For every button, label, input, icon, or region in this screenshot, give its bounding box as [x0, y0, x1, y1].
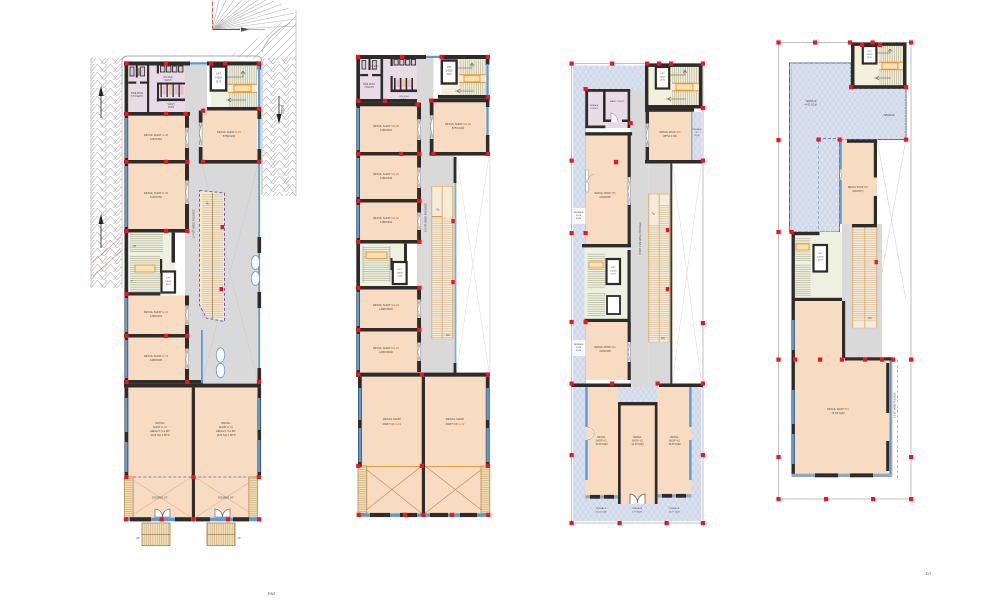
svg-text:RETAIL SHOP UG-03: RETAIL SHOP UG-03: [373, 216, 400, 220]
svg-text:1480X3525: 1480X3525: [379, 307, 393, 311]
svg-text:1450X: 1450X: [659, 76, 666, 78]
svg-text:1480X345: 1480X345: [380, 176, 393, 180]
svg-text:LIFT: LIFT: [166, 278, 171, 280]
svg-text:WASH: WASH: [168, 103, 175, 106]
svg-text:SQ.M: SQ.M: [694, 135, 699, 137]
svg-text:RETAIL SHOP UG-06: RETAIL SHOP UG-06: [445, 122, 472, 126]
svg-text:120X1505: 120X1505: [599, 196, 611, 199]
svg-text:74.83 SQM: 74.83 SQM: [831, 411, 844, 415]
svg-text:UP: UP: [133, 246, 137, 248]
svg-text:1123 SQ.1 MTS: 1123 SQ.1 MTS: [216, 433, 235, 437]
svg-text:34.02 SQM: 34.02 SQM: [595, 512, 606, 514]
svg-text:PART OF G-02: PART OF G-02: [446, 422, 465, 426]
svg-text:LIFT: LIFT: [867, 51, 872, 53]
svg-text:1150X310: 1150X310: [150, 137, 163, 141]
svg-text:LIFT: LIFT: [611, 267, 616, 269]
svg-text:2.4 MT. WIDE PASSAGE: 2.4 MT. WIDE PASSAGE: [192, 209, 196, 238]
svg-text:LIFT: LIFT: [818, 253, 823, 255]
svg-text:5 TOILETS: 5 TOILETS: [131, 95, 143, 98]
svg-text:1450X: 1450X: [165, 281, 172, 283]
svg-text:SQ.M: SQ.M: [576, 218, 582, 220]
svg-text:2170: 2170: [660, 80, 666, 82]
svg-text:RETAIL SHOP: RETAIL SHOP: [383, 417, 401, 421]
svg-text:TERRACE: TERRACE: [574, 343, 585, 346]
svg-text:5.79 SQM: 5.79 SQM: [632, 512, 642, 514]
svg-text:1480X310: 1480X310: [380, 128, 393, 132]
svg-text:88*54 X OB: 88*54 X OB: [663, 135, 677, 138]
svg-text:RETAIL SHOP UG-02: RETAIL SHOP UG-02: [373, 303, 400, 307]
svg-text:RETAIL SHOP 501: RETAIL SHOP 501: [827, 407, 849, 411]
svg-text:SHOP 3.4M WIDE PASSAGE: SHOP 3.4M WIDE PASSAGE: [639, 222, 642, 255]
svg-text:DOUBLE HT.: DOUBLE HT.: [218, 496, 234, 500]
svg-text:PASS: PASS: [168, 106, 174, 109]
svg-text:RETAIL: RETAIL: [221, 421, 231, 425]
svg-text:8750X100: 8750X100: [223, 134, 236, 138]
svg-text:RETAIL SHOP G-04: RETAIL SHOP G-04: [144, 310, 169, 314]
svg-text:(PANTRY): (PANTRY): [852, 190, 863, 193]
svg-text:41.50 SQM: 41.50 SQM: [631, 443, 643, 446]
svg-text:3.4 MT. WIDE PASSAGE: 3.4 MT. WIDE PASSAGE: [424, 203, 428, 232]
svg-text:150X1505: 150X1505: [599, 350, 611, 353]
svg-text:RETAIL SHOP UG-04: RETAIL SHOP UG-04: [373, 172, 400, 176]
svg-text:RETAIL SHOP 405: RETAIL SHOP 405: [594, 192, 616, 195]
svg-text:TOILET: TOILET: [590, 108, 598, 110]
svg-text:DOUBLE HT.: DOUBLE HT.: [152, 496, 168, 500]
svg-text:HEIGHT- 5.4 MT.: HEIGHT- 5.4 MT.: [150, 429, 171, 433]
svg-text:PART OF G-01: PART OF G-01: [383, 422, 402, 426]
svg-text:RETAIL SHOP UG-05: RETAIL SHOP UG-05: [373, 124, 400, 128]
svg-text:2170: 2170: [818, 260, 824, 262]
svg-text:1.8 M: 1.8 M: [576, 347, 581, 349]
svg-text:LIFT: LIFT: [216, 73, 221, 76]
svg-text:1123 SQ.1 MTS: 1123 SQ.1 MTS: [150, 433, 169, 437]
svg-text:RETAIL: RETAIL: [155, 421, 165, 425]
svg-text:RETAIL SHOP G-07: RETAIL SHOP G-07: [217, 130, 242, 134]
svg-text:SHOP G-02: SHOP G-02: [219, 425, 234, 429]
svg-text:30.97 SQM: 30.97 SQM: [668, 512, 679, 514]
svg-text:UP: UP: [136, 536, 140, 540]
svg-text:FEMALE: FEMALE: [590, 104, 599, 107]
svg-text:DN: DN: [661, 337, 665, 340]
svg-text:LIFT: LIFT: [397, 269, 402, 271]
svg-text:1480X302: 1480X302: [380, 220, 393, 224]
svg-text:DN: DN: [868, 317, 872, 320]
svg-text:WASH: WASH: [165, 79, 172, 82]
svg-text:RETAIL SHOP UG-01: RETAIL SHOP UG-01: [373, 346, 400, 350]
svg-text:1480X302: 1480X302: [150, 314, 163, 318]
svg-text:WC AND: WC AND: [163, 76, 173, 79]
svg-text:39.59 SQM: 39.59 SQM: [668, 443, 680, 446]
svg-text:WC AND: WC AND: [370, 65, 379, 68]
svg-text:2170: 2170: [166, 284, 172, 286]
svg-text:1450X: 1450X: [215, 77, 222, 80]
svg-text:FIRE PASS: FIRE PASS: [363, 83, 375, 86]
svg-text:LIFT: LIFT: [660, 73, 665, 75]
svg-text:875X4100: 875X4100: [452, 126, 465, 130]
svg-text:SQ.M: SQ.M: [576, 350, 582, 352]
svg-text:TERRACE: TERRACE: [669, 507, 680, 510]
svg-text:TERRACE: TERRACE: [632, 507, 643, 510]
svg-text:2170: 2170: [447, 74, 453, 76]
svg-text:44.03 SQ.M.: 44.03 SQ.M.: [805, 105, 818, 107]
svg-text:RETAIL SHOP 502: RETAIL SHOP 502: [848, 186, 869, 189]
svg-text:2170: 2170: [216, 81, 222, 84]
svg-text:WS WSH: WS WSH: [399, 96, 409, 98]
svg-text:RETAIL SHOP G-06: RETAIL SHOP G-06: [144, 133, 169, 137]
svg-text:TERRACE: TERRACE: [806, 100, 817, 103]
svg-text:1450X: 1450X: [610, 270, 617, 272]
svg-text:RETAIL SHOP G-03: RETAIL SHOP G-03: [144, 354, 169, 358]
svg-text:WASH: WASH: [371, 68, 378, 71]
svg-text:1120X750: 1120X750: [150, 195, 163, 199]
svg-text:5.0 M: 5.0 M: [576, 215, 581, 217]
svg-text:3.0 MT. WIDE PASSAGE: 3.0 MT. WIDE PASSAGE: [894, 392, 897, 418]
svg-text:2170: 2170: [397, 276, 403, 278]
svg-text:HEIGHT- 5.4 MT.: HEIGHT- 5.4 MT.: [216, 429, 237, 433]
svg-text:ENT: ENT: [268, 591, 277, 596]
svg-text:TOILETS: TOILETS: [364, 87, 374, 89]
svg-text:1480X305: 1480X305: [150, 358, 163, 362]
svg-text:TERRACE: TERRACE: [692, 128, 702, 131]
svg-text:UP: UP: [237, 536, 241, 540]
svg-text:DN: DN: [446, 334, 450, 337]
svg-text:1480X3000: 1480X3000: [379, 350, 393, 354]
svg-text:1450X: 1450X: [817, 256, 824, 258]
svg-text:TERRACE: TERRACE: [596, 507, 607, 510]
svg-text:TERRACE: TERRACE: [884, 114, 895, 117]
svg-text:RETAIL SHOP: RETAIL SHOP: [446, 417, 464, 421]
svg-text:2170: 2170: [611, 274, 617, 276]
svg-text:LIFT: LIFT: [447, 67, 452, 69]
svg-text:1450X: 1450X: [397, 272, 404, 274]
svg-text:1450X: 1450X: [446, 71, 453, 73]
svg-text:DT: DT: [926, 571, 932, 576]
svg-text:SHOP G-01: SHOP G-01: [153, 425, 168, 429]
svg-text:RETAIL SHOP 404: RETAIL SHOP 404: [594, 346, 616, 349]
svg-text:RETAIL SHOP G-05: RETAIL SHOP G-05: [144, 191, 169, 195]
svg-text:MALE TOILET: MALE TOILET: [610, 100, 625, 103]
svg-text:41.08 SQM: 41.08 SQM: [595, 443, 607, 446]
svg-text:RETAIL SHOP 406: RETAIL SHOP 406: [659, 131, 681, 134]
svg-text:ROAD: ROAD: [280, 105, 284, 115]
svg-text:1450X: 1450X: [866, 54, 873, 56]
svg-text:TERRACE: TERRACE: [574, 211, 585, 214]
